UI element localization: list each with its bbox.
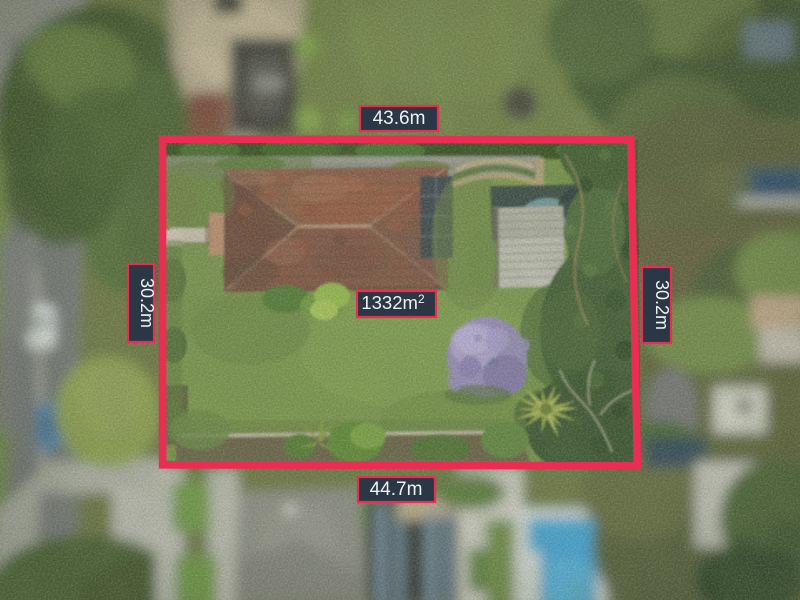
svg-text:44.7m: 44.7m — [370, 479, 423, 500]
svg-text:43.6m: 43.6m — [373, 108, 426, 129]
svg-text:30.2m: 30.2m — [652, 280, 672, 330]
svg-text:1332m2: 1332m2 — [361, 292, 425, 313]
svg-text:30.2m: 30.2m — [137, 278, 157, 328]
